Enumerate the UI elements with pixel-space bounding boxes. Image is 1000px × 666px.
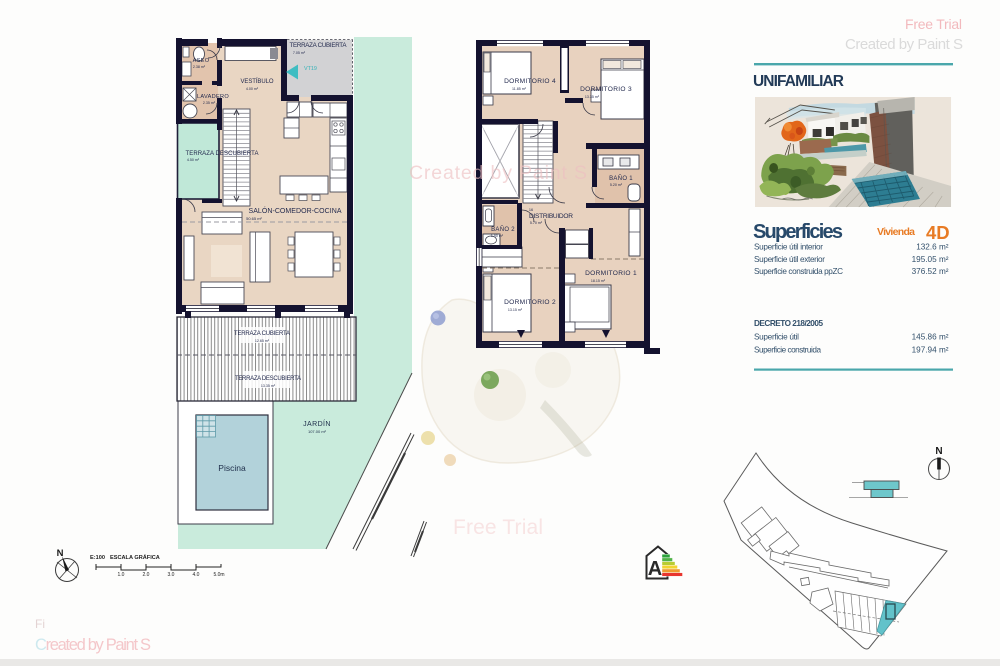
svg-text:2.38 m²: 2.38 m² [193, 65, 206, 69]
svg-text:5.70 m²: 5.70 m² [530, 221, 543, 225]
svg-text:JARDÍN: JARDÍN [303, 419, 331, 428]
svg-text:Free Trial: Free Trial [453, 516, 543, 539]
svg-text:Free Trial: Free Trial [905, 16, 962, 32]
svg-text:Superficies: Superficies [753, 221, 843, 243]
svg-text:Superficie útil exterior: Superficie útil exterior [754, 255, 825, 264]
svg-text:3.0: 3.0 [168, 572, 175, 578]
svg-text:Created by Paint S: Created by Paint S [845, 36, 963, 53]
svg-text:Fi: Fi [35, 617, 45, 631]
svg-text:4D: 4D [926, 222, 950, 243]
svg-text:DISTRIBUIDOR: DISTRIBUIDOR [529, 213, 573, 220]
svg-text:5.20 m²: 5.20 m² [610, 183, 623, 187]
svg-text:N: N [935, 446, 942, 457]
svg-text:A: A [648, 558, 662, 580]
svg-text:1.0: 1.0 [118, 572, 125, 578]
svg-text:7.05 m²: 7.05 m² [293, 51, 306, 55]
svg-text:VT19: VT19 [304, 66, 317, 72]
svg-text:TERRAZA CUBIERTA: TERRAZA CUBIERTA [290, 42, 348, 49]
svg-text:SALÓN-COMEDOR-COCINA: SALÓN-COMEDOR-COCINA [249, 206, 342, 215]
svg-text:11.85 m²: 11.85 m² [512, 87, 527, 91]
svg-text:Superficie construida: Superficie construida [754, 346, 821, 355]
svg-text:DORMITORIO 3: DORMITORIO 3 [580, 86, 632, 93]
svg-text:VESTÍBULO: VESTÍBULO [241, 78, 274, 85]
svg-text:BAÑO 1: BAÑO 1 [609, 175, 633, 182]
svg-text:5.0m: 5.0m [213, 572, 224, 578]
svg-text:N: N [57, 548, 64, 559]
svg-text:1.90 m²: 1.90 m² [491, 234, 504, 238]
svg-text:4.0: 4.0 [193, 572, 200, 578]
svg-text:2.35 m²: 2.35 m² [203, 101, 216, 105]
svg-text:13.15 m²: 13.15 m² [508, 308, 523, 312]
svg-text:50.65 m²: 50.65 m² [246, 216, 262, 221]
svg-text:ASEO: ASEO [193, 58, 210, 64]
svg-text:12.65 m²: 12.65 m² [255, 339, 270, 343]
svg-text:4.50 m²: 4.50 m² [187, 158, 200, 162]
svg-text:Superficie útil: Superficie útil [754, 333, 799, 342]
svg-text:107.00 m²: 107.00 m² [308, 429, 327, 434]
svg-text:E:100: E:100 [90, 555, 105, 561]
svg-text:UNIFAMILIAR: UNIFAMILIAR [753, 73, 844, 90]
svg-text:Vivienda: Vivienda [877, 226, 915, 238]
svg-text:DORMITORIO 4: DORMITORIO 4 [504, 78, 556, 85]
svg-text:TERRAZA DESCUBIERTA: TERRAZA DESCUBIERTA [235, 376, 301, 382]
svg-text:Superficie útil interior: Superficie útil interior [754, 243, 823, 252]
svg-text:Superficie construida ppZC: Superficie construida ppZC [754, 267, 843, 276]
svg-text:195.05 m²: 195.05 m² [912, 255, 949, 264]
svg-text:376.52 m²: 376.52 m² [912, 267, 949, 276]
svg-text:197.94 m²: 197.94 m² [912, 346, 949, 355]
svg-text:Created by Paint S: Created by Paint S [35, 636, 151, 654]
svg-text:4.00 m²: 4.00 m² [246, 87, 259, 91]
svg-text:16: 16 [529, 208, 533, 212]
svg-text:DECRETO 218/2005: DECRETO 218/2005 [754, 319, 823, 328]
svg-text:ESCALA GRÁFICA: ESCALA GRÁFICA [110, 554, 160, 561]
svg-text:2.0: 2.0 [143, 572, 150, 578]
svg-text:13.35 m²: 13.35 m² [261, 384, 276, 388]
svg-text:LAVADERO: LAVADERO [197, 94, 229, 100]
svg-text:145.86 m²: 145.86 m² [912, 333, 949, 342]
svg-text:13.35 m²: 13.35 m² [585, 95, 600, 99]
svg-text:Piscina: Piscina [218, 463, 246, 473]
svg-text:TERRAZA CUBIERTA: TERRAZA CUBIERTA [234, 331, 290, 337]
svg-text:DORMITORIO 2: DORMITORIO 2 [504, 299, 556, 306]
svg-text:132.6 m²: 132.6 m² [916, 243, 949, 252]
svg-text:18.15 m²: 18.15 m² [591, 279, 606, 283]
svg-text:Created by Paint S: Created by Paint S [409, 162, 587, 184]
svg-text:TERRAZA DESCUBIERTA: TERRAZA DESCUBIERTA [186, 151, 259, 157]
svg-text:DORMITORIO 1: DORMITORIO 1 [585, 270, 637, 277]
svg-text:BAÑO 2: BAÑO 2 [491, 226, 515, 233]
